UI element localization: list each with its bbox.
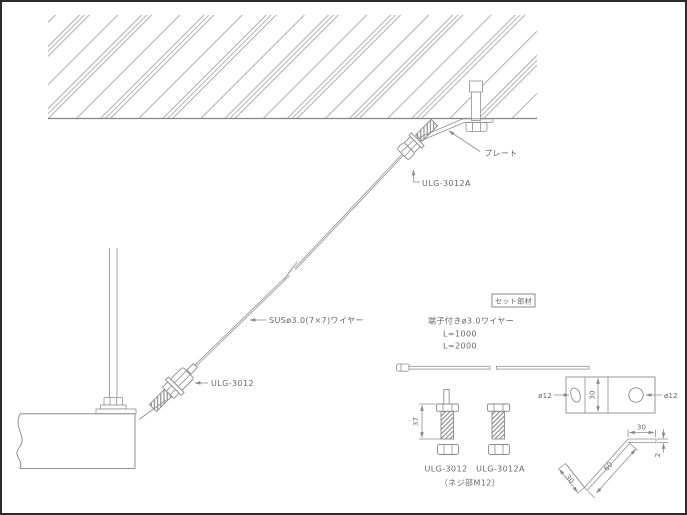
plate-width-dim: 30 [589, 390, 597, 399]
terminal-wire-drawing [397, 364, 590, 371]
set-parts-header: セット部材 端子付きø3.0ワイヤー L=1000 L=2000 [428, 294, 535, 351]
duct-mounting-plate [96, 409, 136, 414]
drawing-canvas: プレート ULG-3012A SUSø3.0(7×7)ワイヤー ULG-3012… [2, 2, 685, 513]
wire-length-2: L=2000 [443, 342, 477, 351]
plate-profile-view: 30 2 60 30 [558, 424, 668, 499]
angle-bottom-dim: 30 [564, 473, 576, 485]
set-parts-title: セット部材 [495, 297, 532, 306]
hanger-rod [96, 248, 136, 414]
bolt-right-label: ULG-3012A [476, 465, 525, 474]
bolt-ulg3012-drawing: 37 [412, 390, 459, 455]
wire-break-tick [284, 269, 292, 280]
upper-fitting-leader [414, 170, 421, 182]
hole-left-dim: ø12 [538, 392, 552, 400]
bolt-labels: ULG-3012 ULG-3012A （ネジ部M12） [425, 465, 526, 488]
hole-right-dim: ø12 [664, 392, 678, 400]
ceiling-hatch [48, 15, 537, 118]
thread-note: （ネジ部M12） [440, 478, 500, 488]
bolt-threaded-shank [492, 411, 505, 439]
angle-web-dim-line [597, 450, 636, 494]
hex-nut [489, 445, 510, 455]
round-hole [629, 388, 643, 402]
suspension-wire [195, 154, 404, 366]
bolt-ulg3012a-drawing [488, 404, 510, 455]
plate-top-view: 30 ø12 ø12 [538, 377, 678, 413]
duct [17, 414, 135, 469]
bolt-length-dim: 37 [412, 417, 420, 426]
hex-nut [438, 445, 459, 455]
wire-length-1: L=1000 [443, 330, 477, 339]
upper-fitting-label: ULG-3012A [422, 179, 471, 188]
angle-thickness-dim: 2 [654, 453, 662, 458]
wire-item-title: 端子付きø3.0ワイヤー [428, 316, 514, 326]
lower-wire-gripper [145, 358, 203, 416]
lower-gripper-threaded-shank [149, 389, 171, 411]
cad-drawing-page: プレート ULG-3012A SUSø3.0(7×7)ワイヤー ULG-3012… [0, 0, 687, 515]
duct-break-line [17, 414, 22, 469]
lower-fitting-label: ULG-3012 [211, 379, 254, 388]
upper-wire-gripper [396, 116, 441, 161]
anchor-bolt-hex-head [466, 123, 487, 132]
bolt-threaded-shank [441, 411, 454, 439]
ceiling-slab [48, 15, 537, 119]
bolt-left-label: ULG-3012 [425, 465, 468, 474]
wire-terminal [397, 364, 410, 371]
plate-label: プレート [484, 149, 518, 158]
wire-label: SUSø3.0(7×7)ワイヤー [269, 316, 364, 325]
angle-top-dim: 30 [637, 424, 646, 432]
bolt-stub [444, 390, 449, 405]
plate-leader [449, 131, 480, 152]
